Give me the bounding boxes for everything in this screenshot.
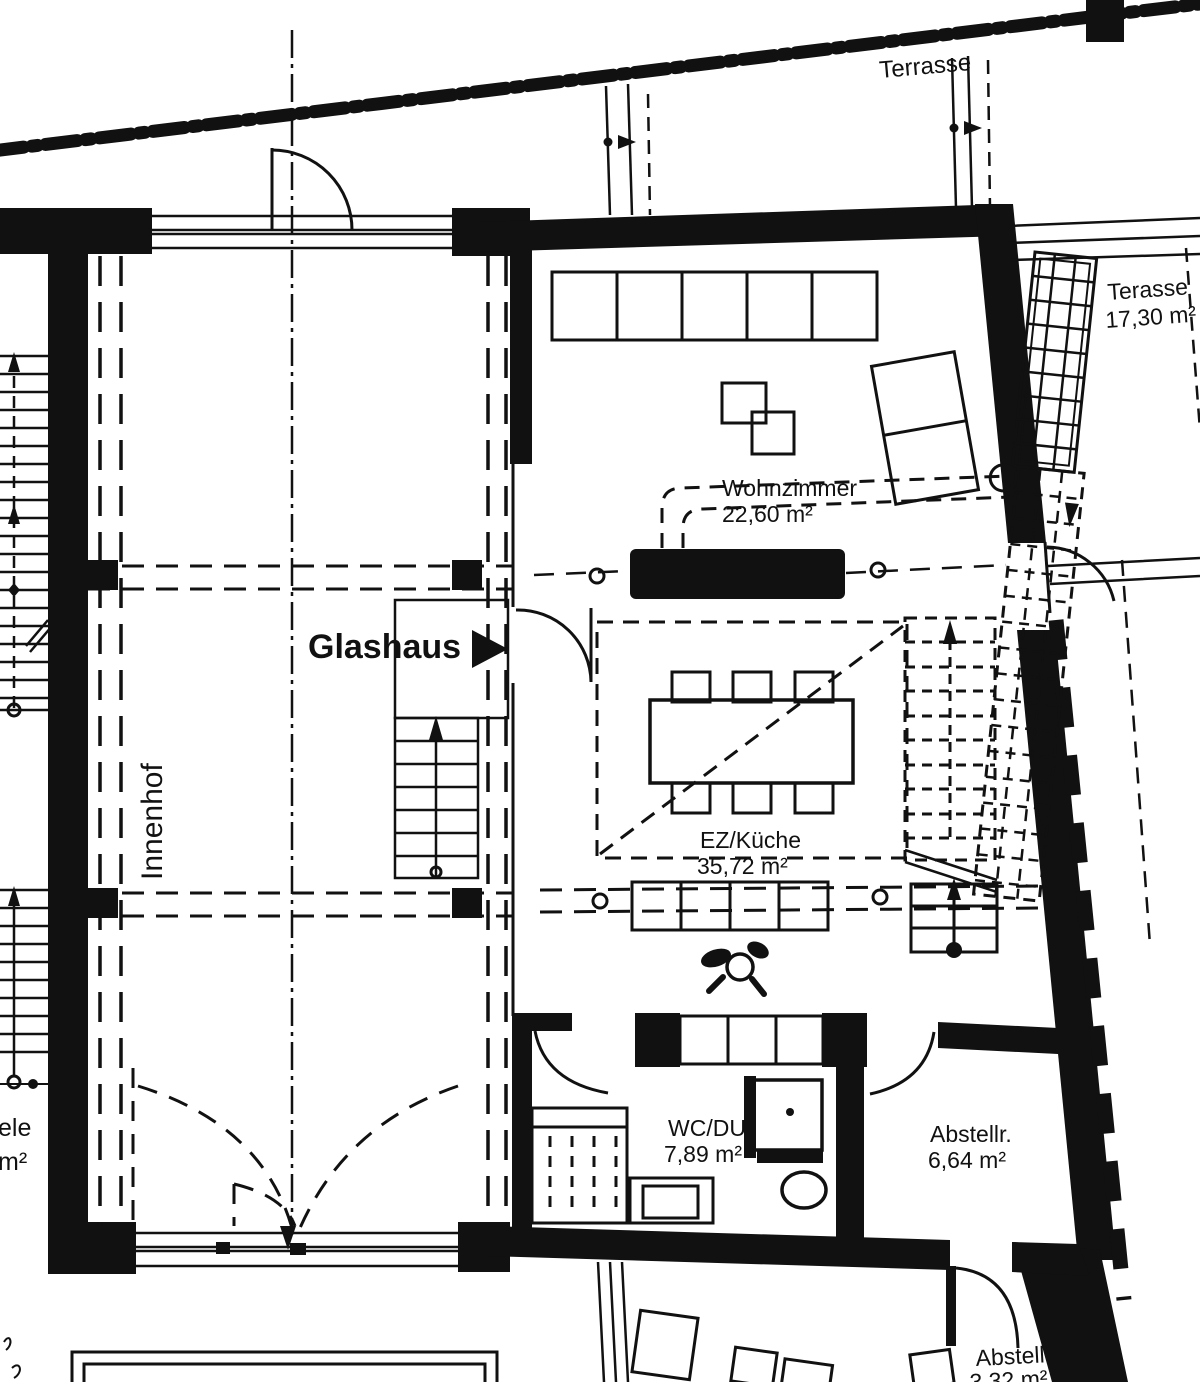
floorplan-sheet: Terrasse Terasse 17,30 m² Wohnzimmer 22,… bbox=[0, 0, 1200, 1382]
label-glashaus: Glashaus bbox=[308, 628, 461, 666]
left-stair-upper-treads bbox=[0, 356, 48, 710]
wc-door-arc bbox=[535, 1031, 608, 1093]
apartment-walls bbox=[478, 204, 1128, 1382]
label-abstell-klein-area: 3,32 m² bbox=[969, 1365, 1049, 1382]
kitchen-axis bbox=[540, 886, 1040, 912]
terrace-stair bbox=[947, 250, 1109, 901]
label-ez-kueche-area: 35,72 m² bbox=[697, 853, 788, 879]
wohnzimmer-furniture bbox=[552, 272, 979, 504]
fireplace-block bbox=[534, 549, 1006, 599]
label-abstellraum: Abstellr. bbox=[930, 1121, 1012, 1147]
label-wc-du-area: 7,89 m² bbox=[664, 1141, 742, 1167]
site-boundary-line bbox=[0, 0, 1200, 151]
label-abstellraum-area: 6,64 m² bbox=[928, 1147, 1006, 1173]
label-terrasse-top: Terrasse bbox=[878, 49, 972, 84]
lower-unit-door-arc bbox=[956, 1268, 1018, 1348]
label-wc-du: WC/DU bbox=[668, 1115, 746, 1141]
glashaus-arrow-icon bbox=[472, 630, 508, 668]
person-figure bbox=[699, 939, 771, 994]
ez-kueche-zone bbox=[597, 622, 907, 858]
lower-unit bbox=[598, 1262, 1018, 1382]
label-diele-partial: ele bbox=[0, 1114, 31, 1142]
label-innenhof: Innenhof bbox=[136, 763, 169, 880]
innenhof-structure bbox=[84, 30, 530, 1272]
label-terrasse-right: Terasse bbox=[1107, 273, 1189, 305]
label-diele-partial-area: m² bbox=[0, 1148, 27, 1176]
label-ez-kueche: EZ/Küche bbox=[700, 827, 801, 853]
glashaus-door bbox=[516, 608, 591, 682]
floorplan-drawing: Terrasse Terasse 17,30 m² Wohnzimmer 22,… bbox=[0, 0, 1200, 1382]
dining-table-set bbox=[650, 672, 853, 813]
label-terrasse-right-area: 17,30 m² bbox=[1105, 301, 1198, 333]
abstellraum-door-arc bbox=[870, 1032, 934, 1094]
label-wohnzimmer: Wohnzimmer bbox=[722, 475, 857, 501]
label-wohnzimmer-area: 22,60 m² bbox=[722, 501, 813, 527]
planter bbox=[4, 1338, 497, 1382]
left-stair-lower-treads bbox=[0, 890, 48, 1052]
